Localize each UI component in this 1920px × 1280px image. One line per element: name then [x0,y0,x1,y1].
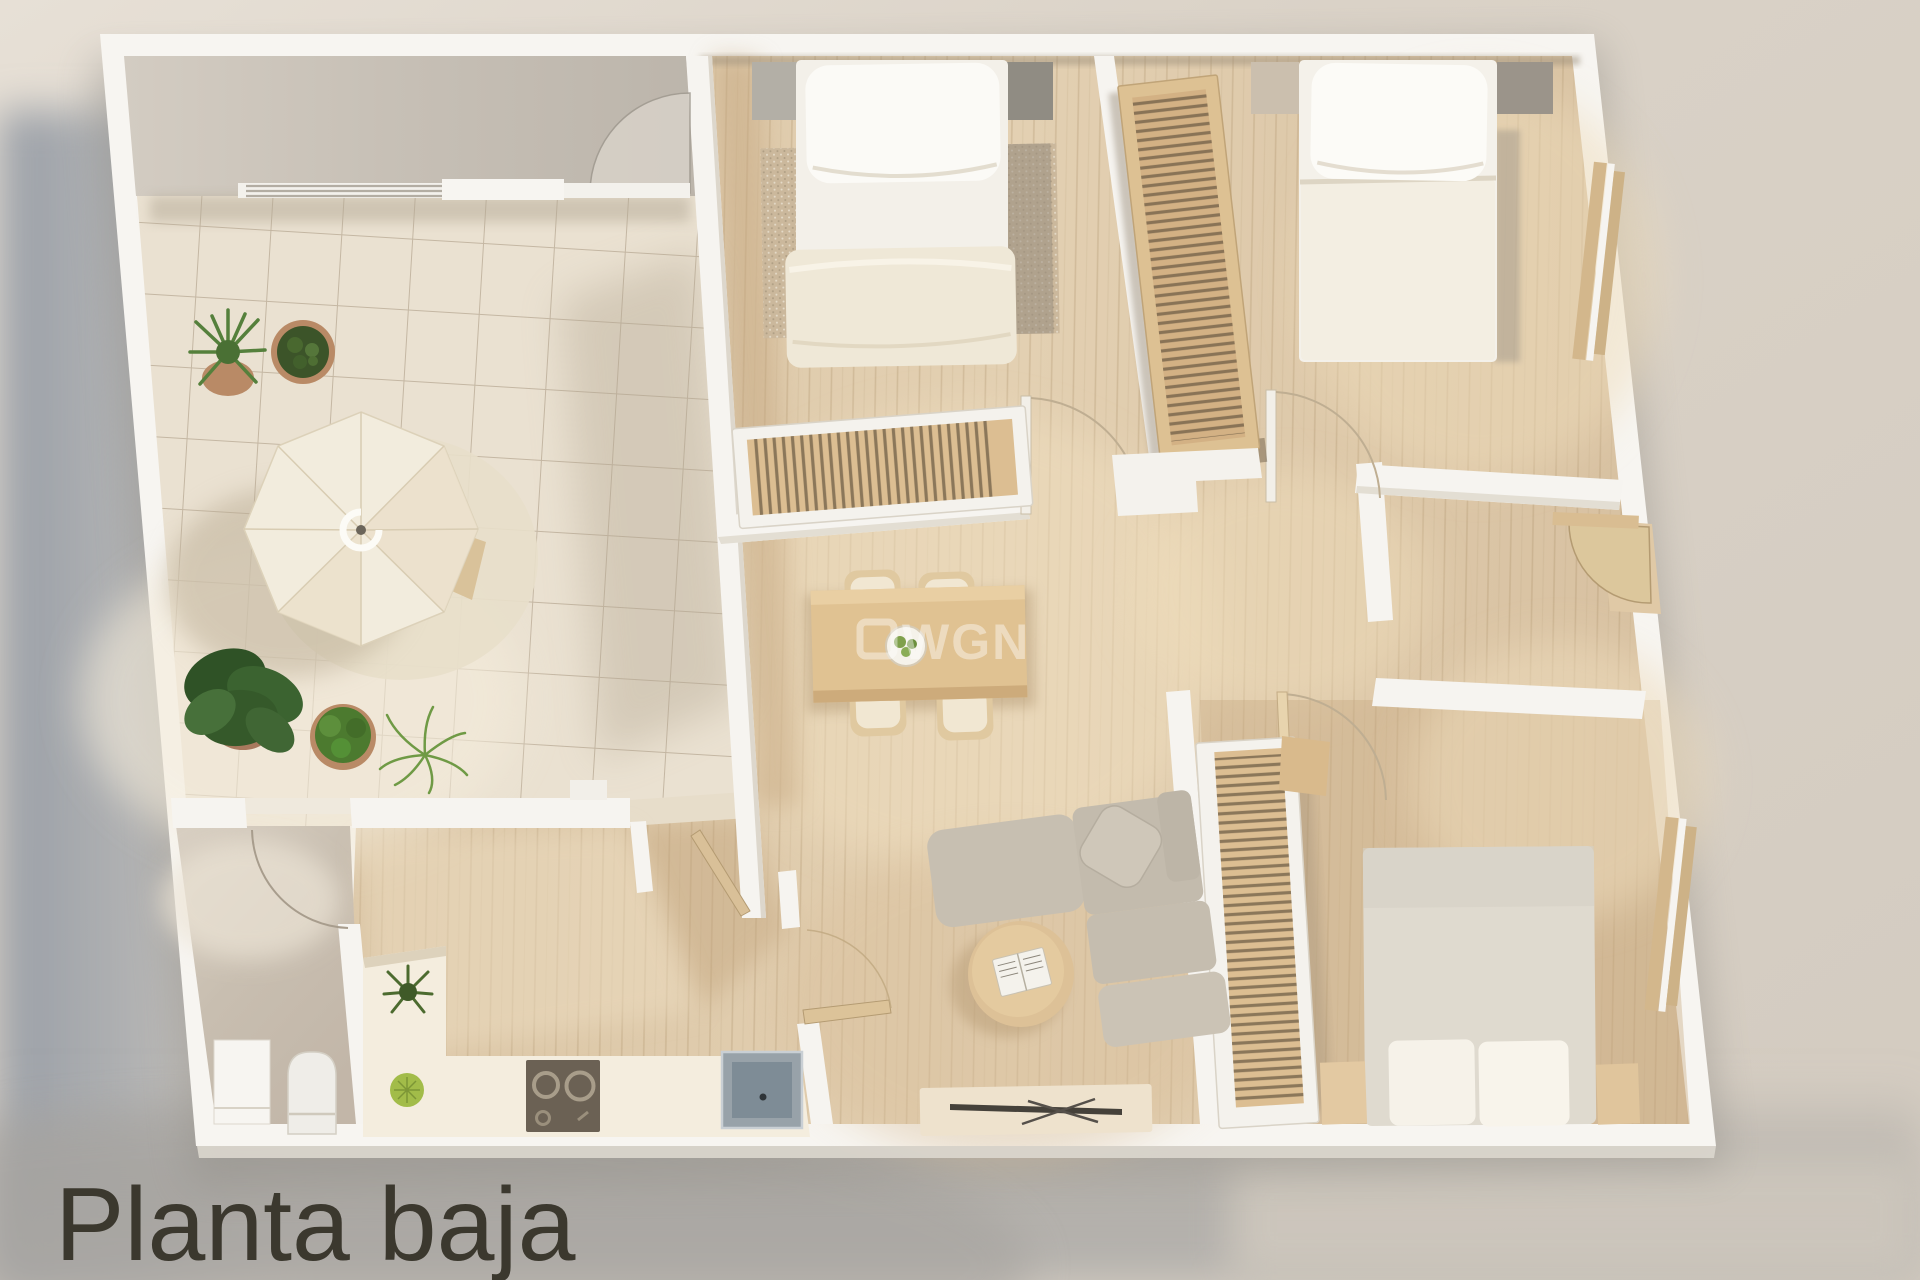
svg-text:WGN: WGN [902,614,1030,670]
svg-text:Planta baja: Planta baja [55,1167,576,1280]
